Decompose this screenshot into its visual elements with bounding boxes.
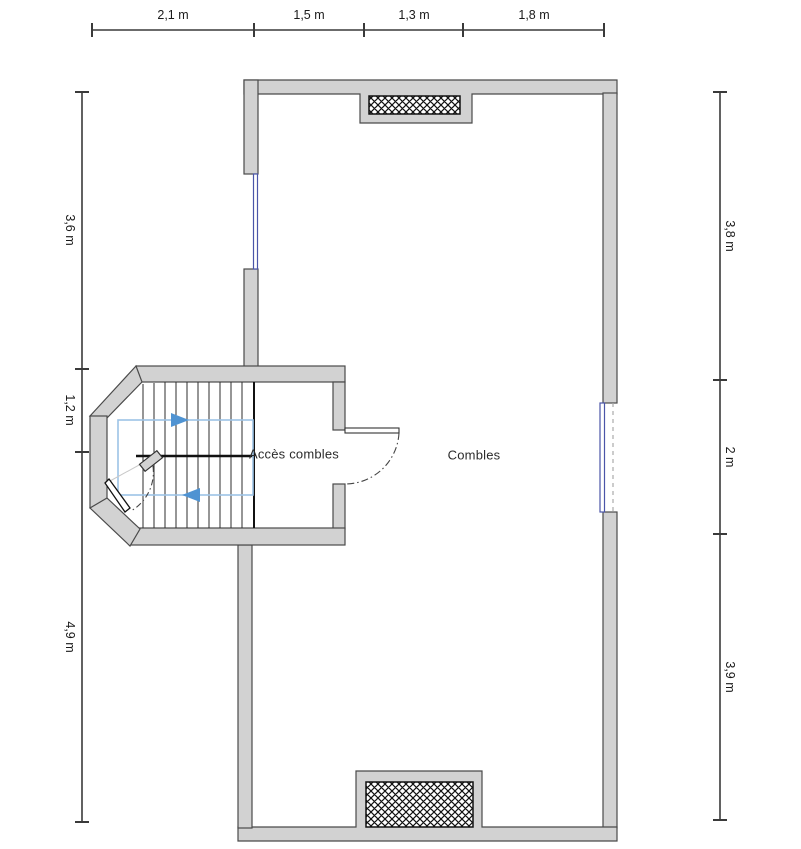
wall-enclosure-right-lower[interactable] <box>333 484 345 529</box>
dimension-label: 1,3 m <box>398 8 429 22</box>
dimension-label: 4,9 m <box>63 621 77 652</box>
dimension-line-top <box>92 23 604 37</box>
wall-segment-left-middle[interactable] <box>244 269 258 370</box>
door-swing-arc <box>131 466 153 511</box>
dimension-label: 2 m <box>723 447 737 468</box>
floor-plan-canvas: Accès combles Combles 2,1 m 1,5 m 1,3 m … <box>0 0 801 849</box>
arrow-left-icon <box>182 488 200 502</box>
vent-hatch-bottom[interactable] <box>366 782 473 827</box>
dimension-label: 3,6 m <box>63 214 77 245</box>
stair-direction-path <box>118 420 253 495</box>
room-label-combles: Combles <box>448 448 501 463</box>
wall-enclosure-top[interactable] <box>136 366 345 382</box>
wall-enclosure-bottom[interactable] <box>130 528 345 545</box>
arrow-right-icon <box>171 413 189 427</box>
wall-enclosure-right-upper[interactable] <box>333 382 345 430</box>
dimension-label: 1,5 m <box>293 8 324 22</box>
wall-segment-left-upper[interactable] <box>244 80 258 174</box>
window-right-wall[interactable] <box>600 403 613 512</box>
dimension-label: 2,1 m <box>157 8 188 22</box>
wall-segment-right-lower[interactable] <box>603 512 617 828</box>
floor-plan-drawing <box>0 0 801 849</box>
dimension-label: 1,2 m <box>63 394 77 425</box>
dimension-label: 3,8 m <box>723 220 737 251</box>
wall-bay-left[interactable] <box>90 416 107 508</box>
dimension-label: 1,8 m <box>518 8 549 22</box>
door-swing-arc <box>345 433 399 484</box>
room-label-acces-combles: Accès combles <box>249 447 339 462</box>
door-to-combles[interactable] <box>345 428 399 484</box>
dimension-label: 3,9 m <box>723 661 737 692</box>
wall-segment-left-lower[interactable] <box>238 545 252 828</box>
dimension-line-left <box>75 92 89 822</box>
wall-bay-upper-diagonal[interactable] <box>90 366 142 418</box>
wall-segment-right-upper[interactable] <box>603 93 617 403</box>
door-leaf <box>345 428 399 433</box>
vent-hatch-top[interactable] <box>369 96 460 114</box>
wall-bay-lower-diagonal[interactable] <box>90 498 140 546</box>
window-left-wall[interactable] <box>254 174 258 269</box>
